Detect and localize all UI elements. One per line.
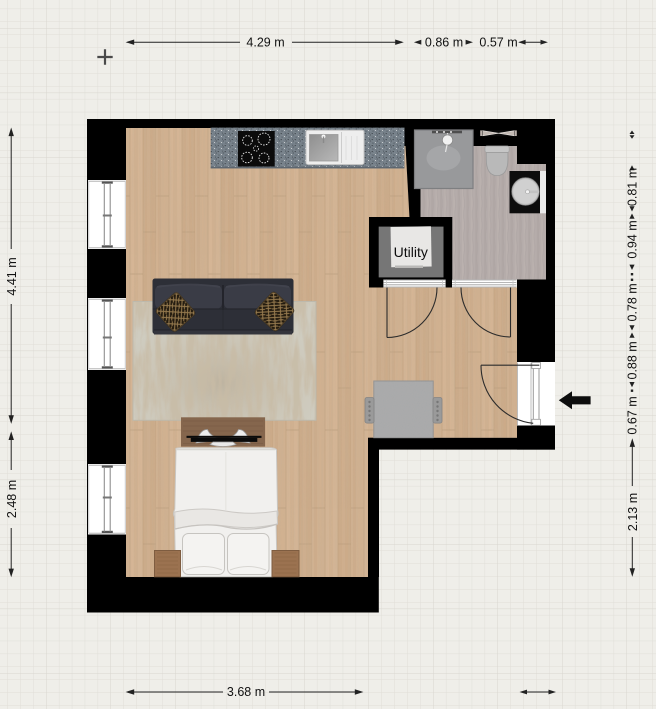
svg-text:4.29 m: 4.29 m [246,36,284,50]
svg-text:0.94 m: 0.94 m [625,220,639,258]
svg-text:Utility: Utility [394,244,428,260]
svg-text:2.13 m: 2.13 m [626,493,640,531]
svg-text:0.67 m: 0.67 m [625,396,639,434]
svg-text:3.68 m: 3.68 m [227,685,265,699]
svg-text:0.57 m: 0.57 m [479,36,517,50]
svg-text:0.81 m: 0.81 m [625,168,639,206]
svg-text:4.41 m: 4.41 m [5,257,19,295]
svg-text:0.78 m: 0.78 m [625,283,639,321]
svg-text:0.88 m: 0.88 m [625,341,639,379]
svg-text:0.86 m: 0.86 m [425,36,463,50]
svg-text:2.48 m: 2.48 m [5,480,19,518]
